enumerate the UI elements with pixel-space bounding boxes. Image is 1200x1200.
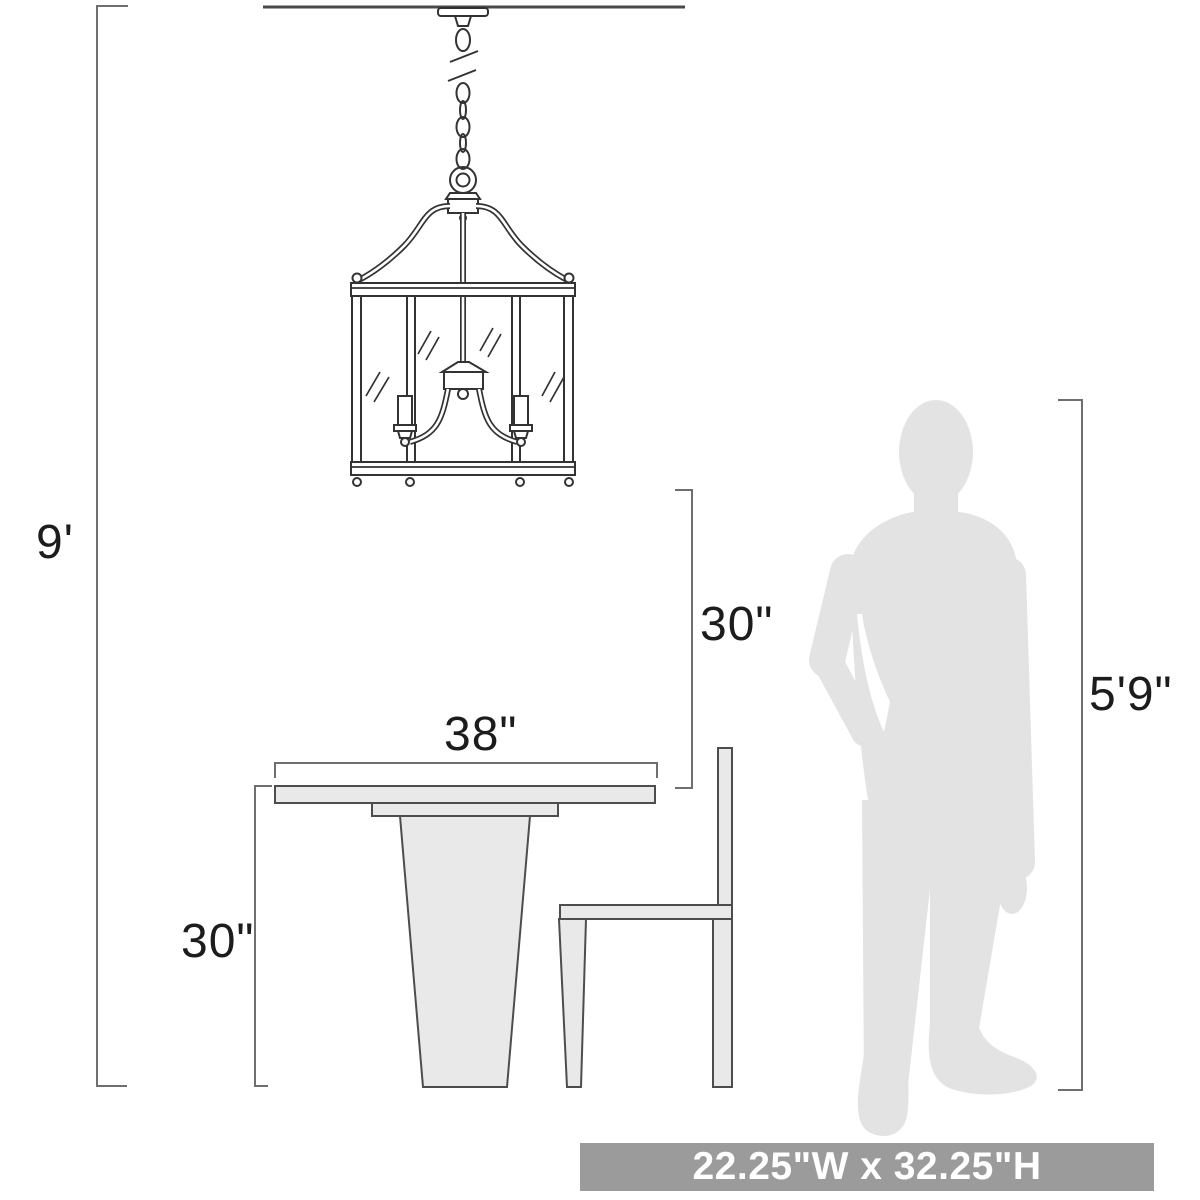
dim-bracket-clearance — [675, 490, 692, 788]
hub — [448, 199, 478, 213]
chandelier-icon — [351, 8, 575, 486]
diagram-canvas: 9' 30" 38" 30" 5'9" 22.25"W x 32.25"H — [0, 0, 1200, 1200]
cage-mullion — [407, 296, 415, 473]
label-ceiling-height: 9' — [36, 519, 74, 567]
cage-top-rail — [351, 283, 575, 296]
cage-bottom-rail — [351, 462, 575, 475]
dim-bracket-person-height — [1058, 400, 1082, 1090]
dining-table-icon — [275, 786, 655, 1087]
hang-loop — [456, 29, 470, 51]
bell-arm-left — [359, 206, 450, 280]
canopy — [438, 8, 488, 16]
dim-bracket-table-width — [275, 763, 657, 778]
center-body — [444, 372, 483, 389]
label-person-height: 5'9" — [1089, 671, 1173, 719]
label-table-height: 30" — [181, 918, 254, 966]
dimension-diagram-art — [0, 0, 1200, 1200]
break-mark — [448, 70, 476, 81]
ring — [450, 167, 476, 193]
chain — [457, 83, 470, 169]
label-table-width: 38" — [444, 711, 517, 759]
fixture-size-banner: 22.25"W x 32.25"H — [580, 1143, 1154, 1191]
dim-bracket-table-height — [255, 786, 272, 1086]
person-silhouette-icon — [827, 400, 1037, 1136]
break-mark — [450, 51, 478, 62]
label-clearance-to-table: 30" — [700, 601, 773, 649]
dim-bracket-ceiling-height — [97, 6, 128, 1086]
bell-arm-right — [476, 206, 567, 280]
